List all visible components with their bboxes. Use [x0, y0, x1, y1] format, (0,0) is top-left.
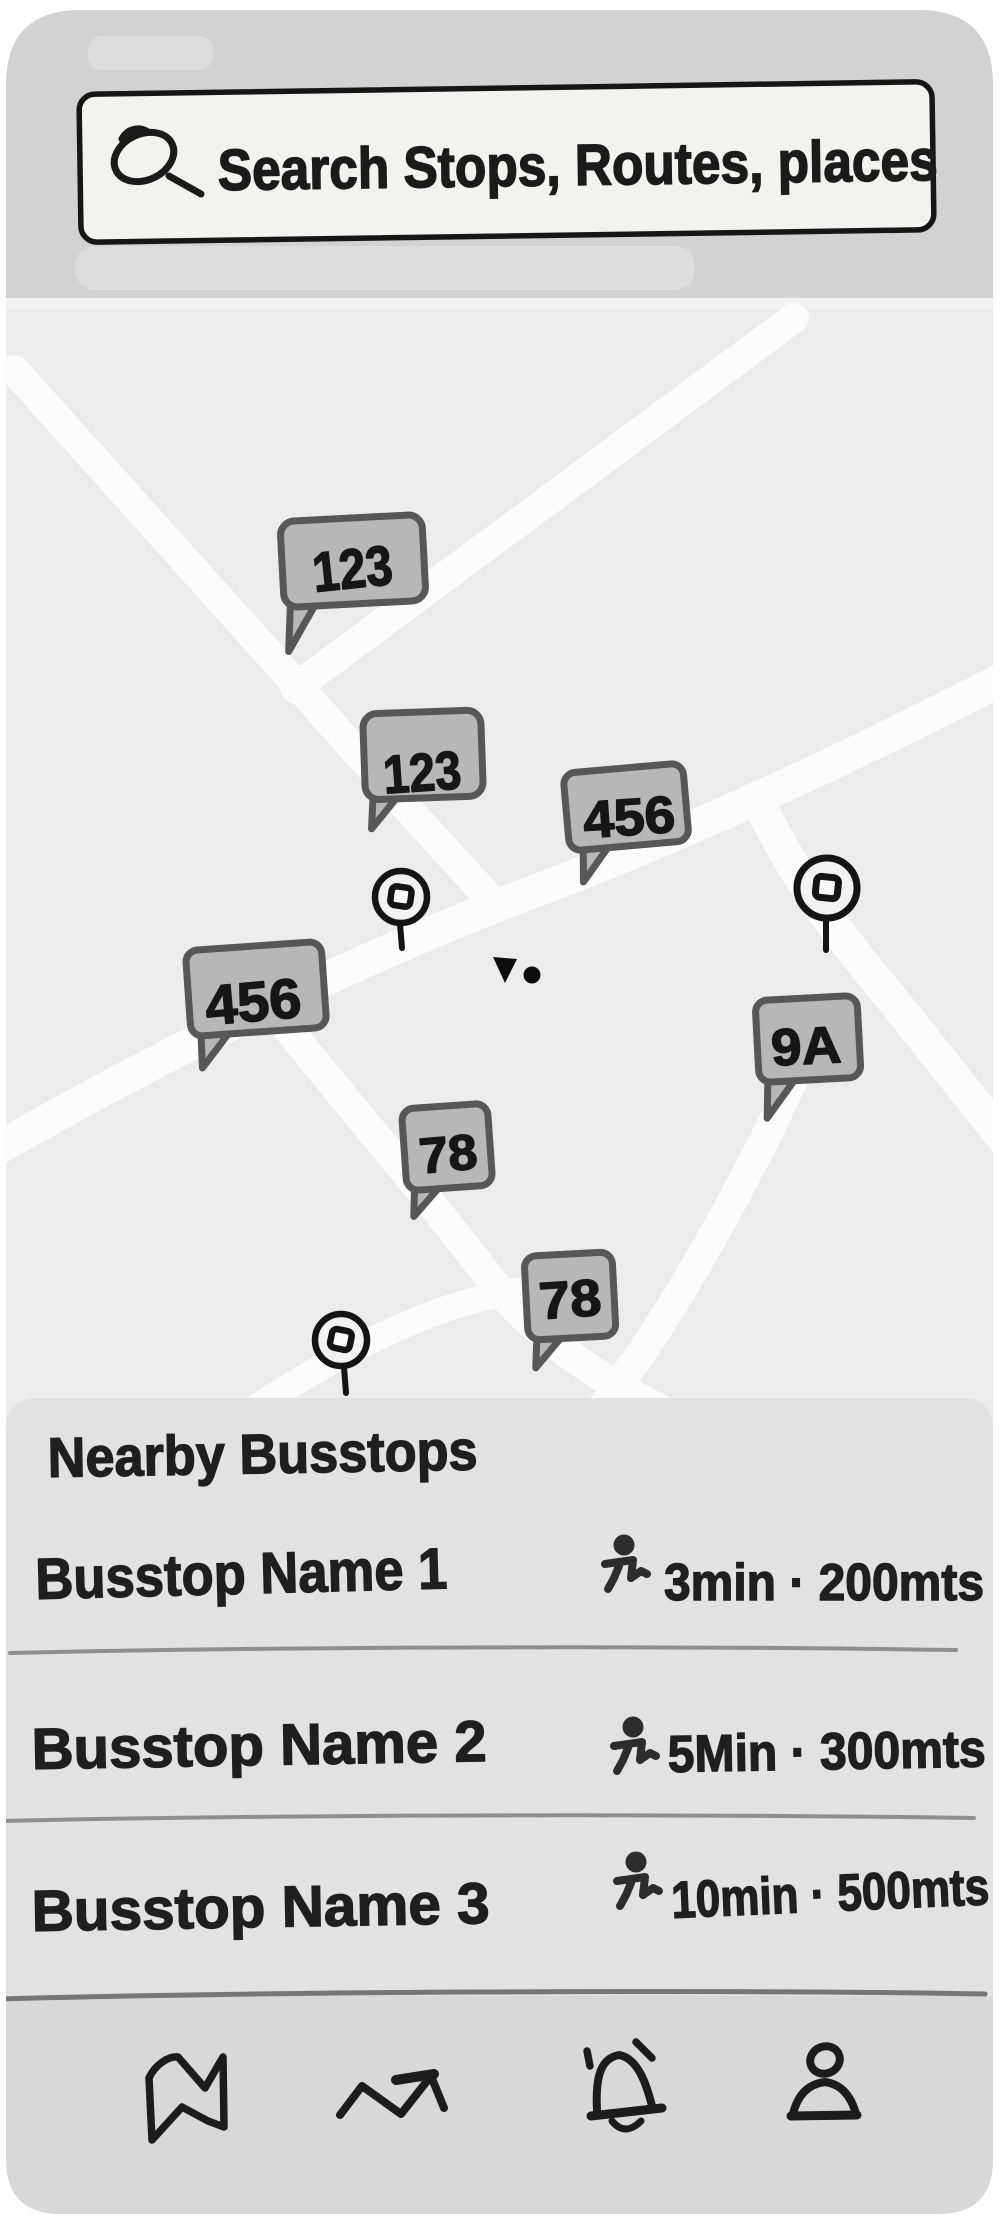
- svg-text:456: 456: [203, 966, 304, 1037]
- svg-text:Nearby Busstops: Nearby Busstops: [47, 1419, 478, 1489]
- svg-text:456: 456: [581, 786, 677, 850]
- svg-text:5Min · 300mts: 5Min · 300mts: [667, 1720, 986, 1784]
- svg-text:3min · 200mts: 3min · 200mts: [664, 1554, 984, 1612]
- svg-text:Search Stops, Routes, places: Search Stops, Routes, places: [217, 128, 938, 203]
- svg-text:123: 123: [381, 740, 463, 805]
- svg-text:Busstop Name 3: Busstop Name 3: [31, 1871, 490, 1944]
- svg-text:78: 78: [537, 1269, 603, 1331]
- svg-text:78: 78: [417, 1124, 480, 1185]
- svg-text:Busstop Name 1: Busstop Name 1: [35, 1536, 449, 1612]
- svg-text:123: 123: [309, 533, 395, 604]
- svg-text:Busstop Name 2: Busstop Name 2: [31, 1709, 487, 1782]
- svg-text:9A: 9A: [770, 1016, 843, 1078]
